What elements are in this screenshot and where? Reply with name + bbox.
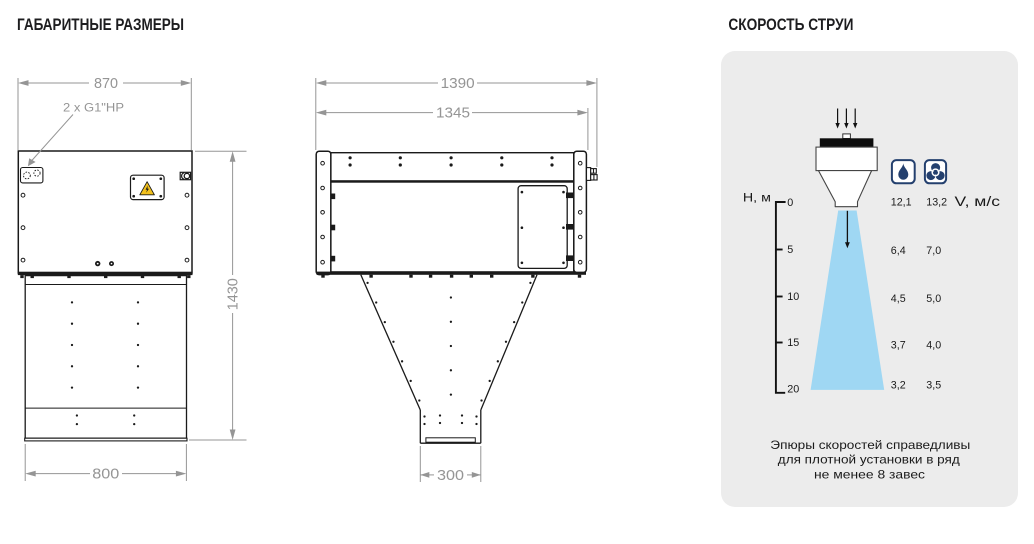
svg-text:4,5: 4,5 xyxy=(891,293,906,305)
svg-text:13,2: 13,2 xyxy=(926,197,947,209)
svg-text:3,7: 3,7 xyxy=(891,340,906,352)
svg-text:12,1: 12,1 xyxy=(891,197,912,209)
svg-text:7,0: 7,0 xyxy=(926,245,941,257)
svg-text:6,4: 6,4 xyxy=(891,245,906,257)
svg-text:5,0: 5,0 xyxy=(926,293,941,305)
svg-text:3,2: 3,2 xyxy=(891,380,906,392)
svg-text:870: 870 xyxy=(94,75,118,92)
svg-text:V, м/с: V, м/с xyxy=(955,194,1001,209)
svg-text:3,5: 3,5 xyxy=(926,380,941,392)
svg-text:1345: 1345 xyxy=(436,105,470,122)
svg-text:1430: 1430 xyxy=(224,278,241,310)
svg-text:не менее 8 завес: не менее 8 завес xyxy=(814,468,925,481)
svg-text:1390: 1390 xyxy=(441,75,475,92)
svg-text:300: 300 xyxy=(437,467,464,484)
svg-text:0: 0 xyxy=(787,197,793,209)
svg-text:10: 10 xyxy=(787,291,799,303)
svg-text:5: 5 xyxy=(787,244,793,256)
svg-text:СКОРОСТЬ СТРУИ: СКОРОСТЬ СТРУИ xyxy=(728,16,853,34)
svg-text:для плотной установки в ряд: для плотной установки в ряд xyxy=(778,454,960,467)
svg-text:2 x G1"HP: 2 x G1"HP xyxy=(63,103,124,115)
svg-text:800: 800 xyxy=(92,466,119,483)
svg-text:ГАБАРИТНЫЕ РАЗМЕРЫ: ГАБАРИТНЫЕ РАЗМЕРЫ xyxy=(17,16,184,34)
svg-text:15: 15 xyxy=(787,337,799,349)
svg-text:4,0: 4,0 xyxy=(926,340,941,352)
svg-text:Эпюры скоростей справедливы: Эпюры скоростей справедливы xyxy=(770,439,970,452)
svg-text:20: 20 xyxy=(787,384,799,396)
svg-text:Н, м: Н, м xyxy=(743,193,771,205)
